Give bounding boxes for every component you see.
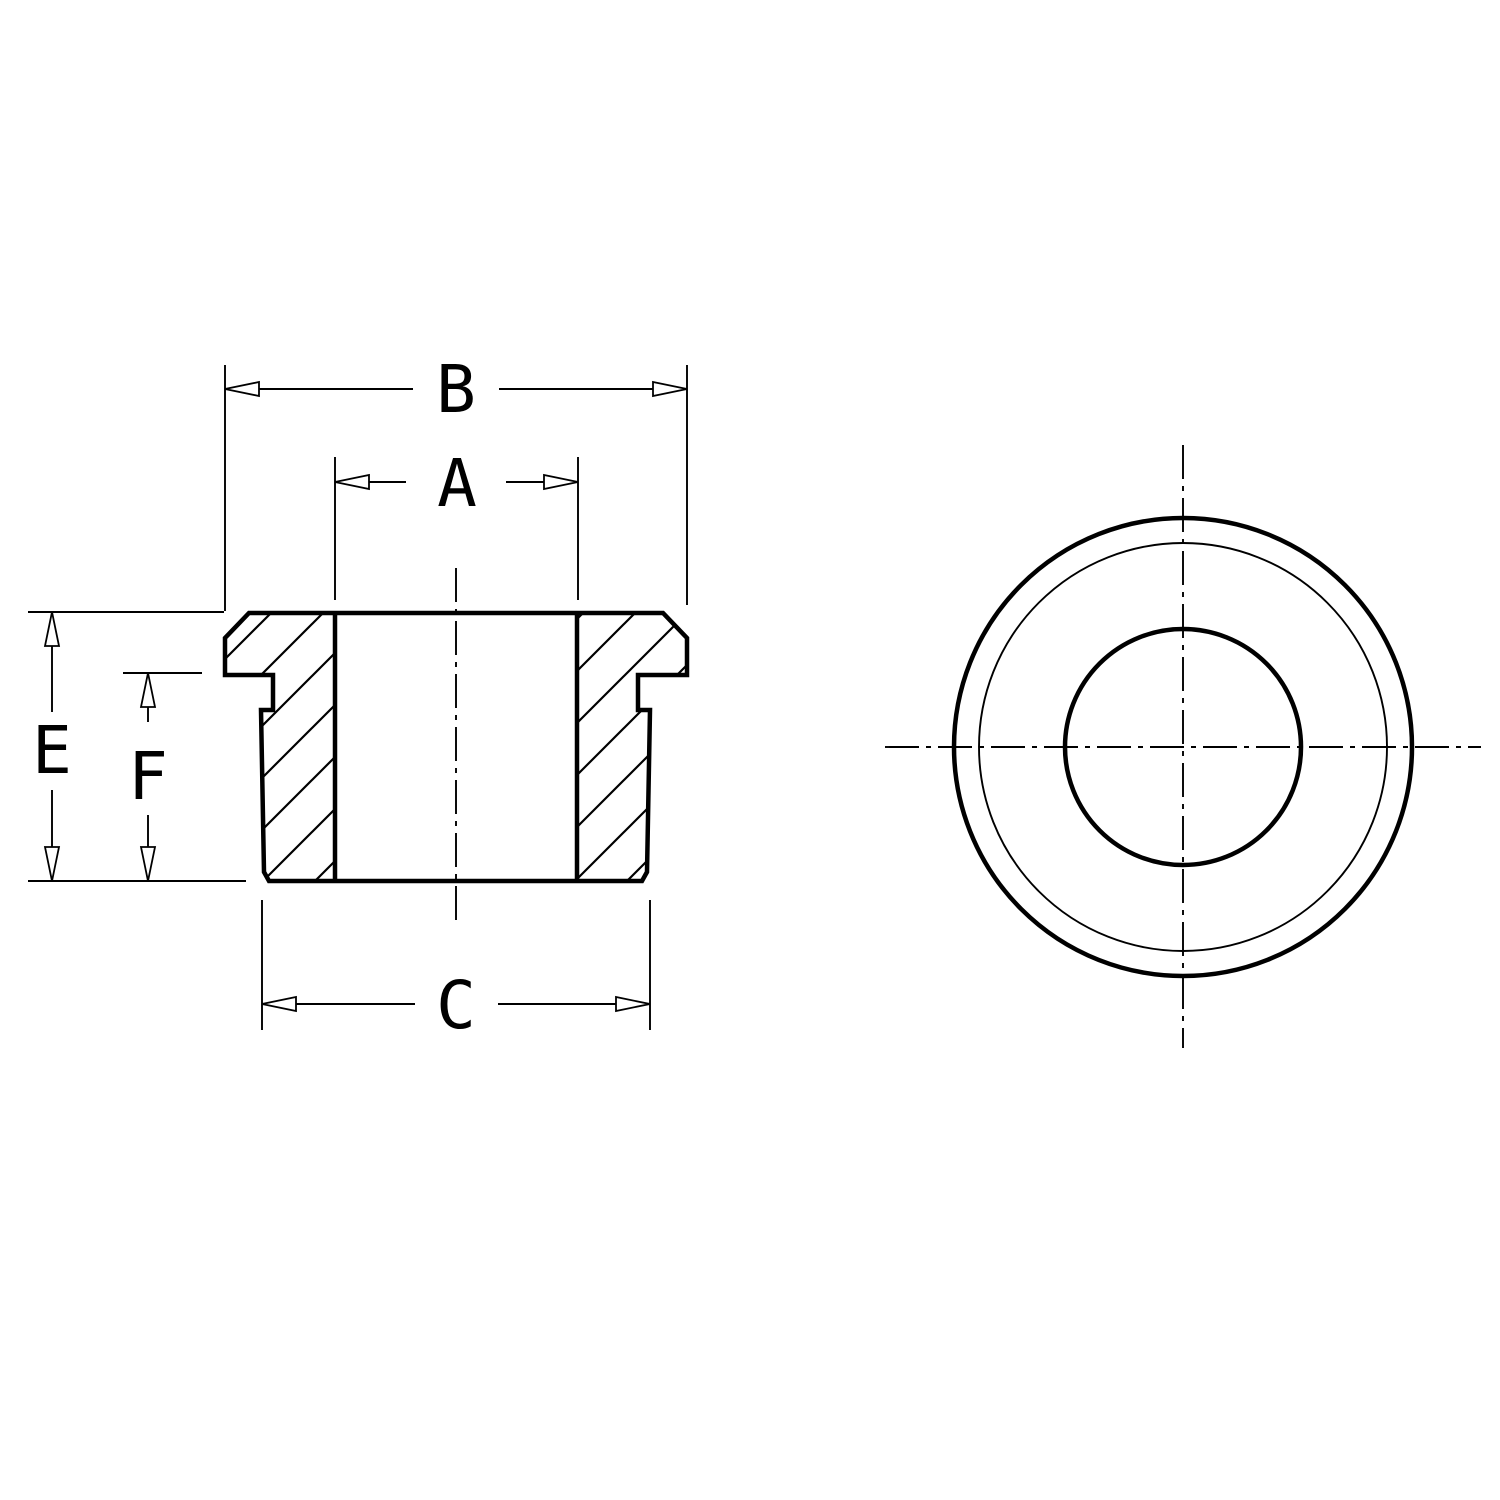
dim-e-label: E (32, 712, 72, 789)
dim-f-arrow-up (141, 673, 155, 707)
section-view (225, 568, 687, 922)
hatch-right-wall (577, 613, 687, 881)
dim-b-arrow-left (225, 382, 259, 396)
dimension-c: C (262, 900, 650, 1044)
dim-e-arrow-down (45, 847, 59, 881)
dim-b-arrow-right (653, 382, 687, 396)
dim-f-label: F (128, 738, 168, 815)
dim-a-label: A (437, 445, 477, 522)
dim-f-arrow-down (141, 847, 155, 881)
dim-b-label: B (436, 351, 476, 428)
dim-e-arrow-up (45, 612, 59, 646)
bushing-technical-drawing: B A E F C (0, 0, 1500, 1500)
dimension-f: F (123, 673, 202, 881)
dim-c-label: C (436, 967, 476, 1044)
drawing-canvas: B A E F C (0, 0, 1500, 1500)
dim-c-arrow-left (262, 997, 296, 1011)
dim-c-arrow-right (616, 997, 650, 1011)
front-view (885, 445, 1481, 1048)
hatch-left-wall (225, 613, 335, 881)
dim-a-arrow-left (335, 475, 369, 489)
dim-a-arrow-right (544, 475, 578, 489)
